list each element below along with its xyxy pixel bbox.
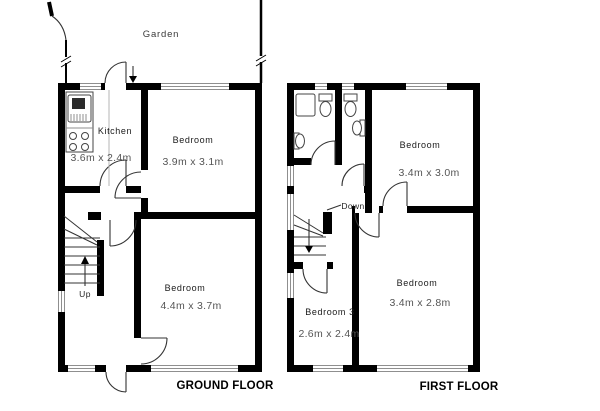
door-arc — [303, 269, 327, 293]
ground-floor-plan: Kitchen 3.6m x 2.4m Bedroom 3.9m x 3.1m … — [58, 62, 274, 392]
down-leader-line — [327, 205, 341, 210]
ff-bedroom-back-label: Bedroom — [397, 278, 438, 288]
gf-bedroom-front-label: Bedroom — [173, 135, 214, 145]
window — [161, 83, 229, 90]
window — [58, 291, 65, 312]
down-label: Down — [341, 201, 364, 211]
ground-floor-doors — [100, 62, 167, 392]
door-arc — [115, 172, 141, 198]
gf-bedroom-front-dims: 3.9m x 3.1m — [162, 156, 223, 168]
door-arc — [110, 220, 136, 246]
door-arc — [383, 182, 407, 206]
first-floor-title: FIRST FLOOR — [420, 381, 499, 393]
door-arc — [106, 372, 126, 392]
up-arrow-head — [81, 256, 89, 264]
shower-tray-icon — [296, 94, 315, 116]
down-arrow-head — [305, 246, 313, 253]
stairs-down — [294, 205, 341, 255]
window — [287, 273, 294, 298]
window — [287, 166, 294, 186]
basin-icon — [353, 120, 366, 136]
ff-bedroom-back-dims: 3.4m x 2.8m — [389, 297, 450, 309]
kitchen-label: Kitchen — [98, 126, 132, 136]
ff-bedroom-three-label: Bedroom 3 — [305, 307, 354, 317]
garden-label: Garden — [143, 29, 180, 40]
ff-bedroom-three-dims: 2.6m x 2.4m — [298, 328, 359, 340]
first-floor-plan: Bedroom 3.4m x 3.0m Bedroom 3.4m x 2.8m … — [287, 83, 499, 393]
floorplan-page: Garden — [0, 0, 600, 411]
window — [80, 83, 101, 90]
ff-bedroom-front-label: Bedroom — [400, 140, 441, 150]
toilet-icon — [319, 94, 332, 117]
ff-bedroom-front-dims: 3.4m x 3.0m — [398, 167, 459, 179]
entry-arrow-head — [129, 76, 137, 83]
door-arc — [105, 62, 126, 83]
gf-bedroom-back-label: Bedroom — [165, 283, 206, 293]
floorplan-drawing: Garden — [0, 0, 600, 411]
window — [406, 83, 447, 90]
basin-icon — [294, 133, 305, 149]
up-label: Up — [79, 289, 91, 299]
window — [315, 83, 327, 90]
window — [342, 83, 354, 90]
garden-gate-post — [49, 2, 52, 16]
door-arc — [311, 141, 335, 165]
window — [151, 365, 238, 372]
gf-bedroom-back-dims: 4.4m x 3.7m — [160, 300, 221, 312]
bathroom-fixtures — [294, 94, 365, 149]
garden-gate-arc — [52, 16, 66, 40]
sink-icon — [68, 95, 91, 122]
window — [377, 365, 468, 372]
ground-floor-title: GROUND FLOOR — [177, 380, 274, 392]
door-arc — [342, 164, 364, 186]
kitchen-dims: 3.6m x 2.4m — [70, 152, 131, 164]
stairs-up — [64, 216, 100, 286]
window — [287, 194, 294, 230]
window — [68, 365, 95, 372]
toilet-icon — [344, 94, 357, 117]
kitchen-fixtures — [66, 90, 109, 186]
window — [313, 365, 343, 372]
garden-area: Garden — [49, 0, 266, 83]
door-arc — [141, 338, 167, 364]
